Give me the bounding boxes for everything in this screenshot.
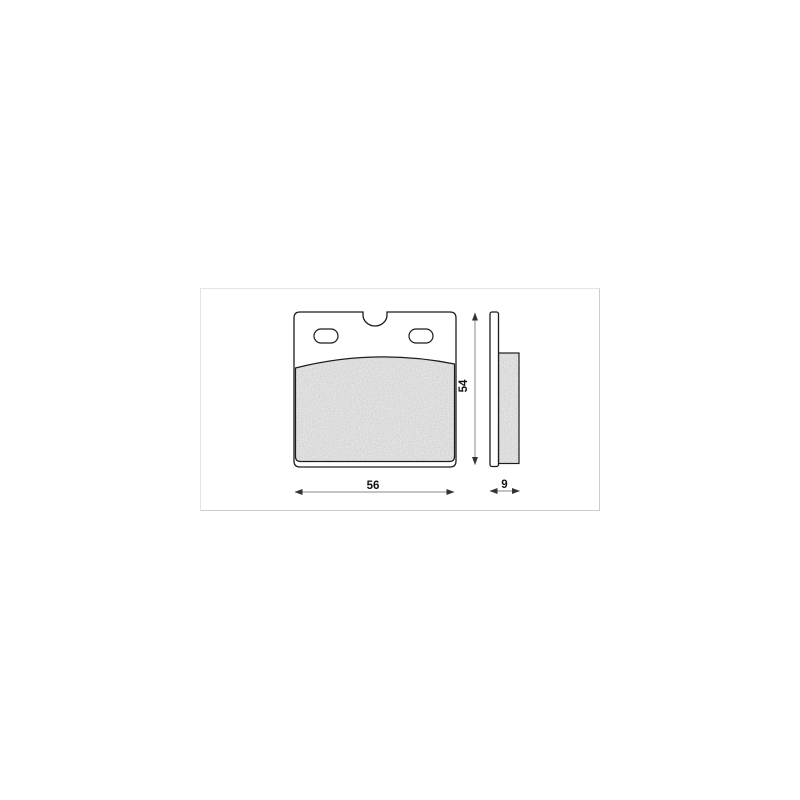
dimension-height-label: 54 — [458, 379, 470, 392]
dimension-height: 54 — [458, 313, 475, 465]
brake-pad-diagram: 56 54 9 — [201, 289, 599, 510]
mounting-hole-right — [409, 329, 433, 343]
dimension-width: 56 — [295, 480, 454, 492]
page-background: 56 54 9 — [0, 0, 800, 800]
dimension-thickness: 9 — [490, 479, 520, 491]
mounting-hole-left — [314, 329, 338, 343]
dimension-width-label: 56 — [367, 480, 380, 492]
backing-plate-side — [490, 312, 499, 467]
dimension-thickness-label: 9 — [501, 479, 507, 491]
front-view — [294, 312, 457, 467]
side-view — [490, 312, 519, 467]
friction-material-front — [294, 346, 457, 463]
friction-material-side — [499, 353, 520, 464]
drawing-canvas: 56 54 9 — [200, 288, 600, 511]
